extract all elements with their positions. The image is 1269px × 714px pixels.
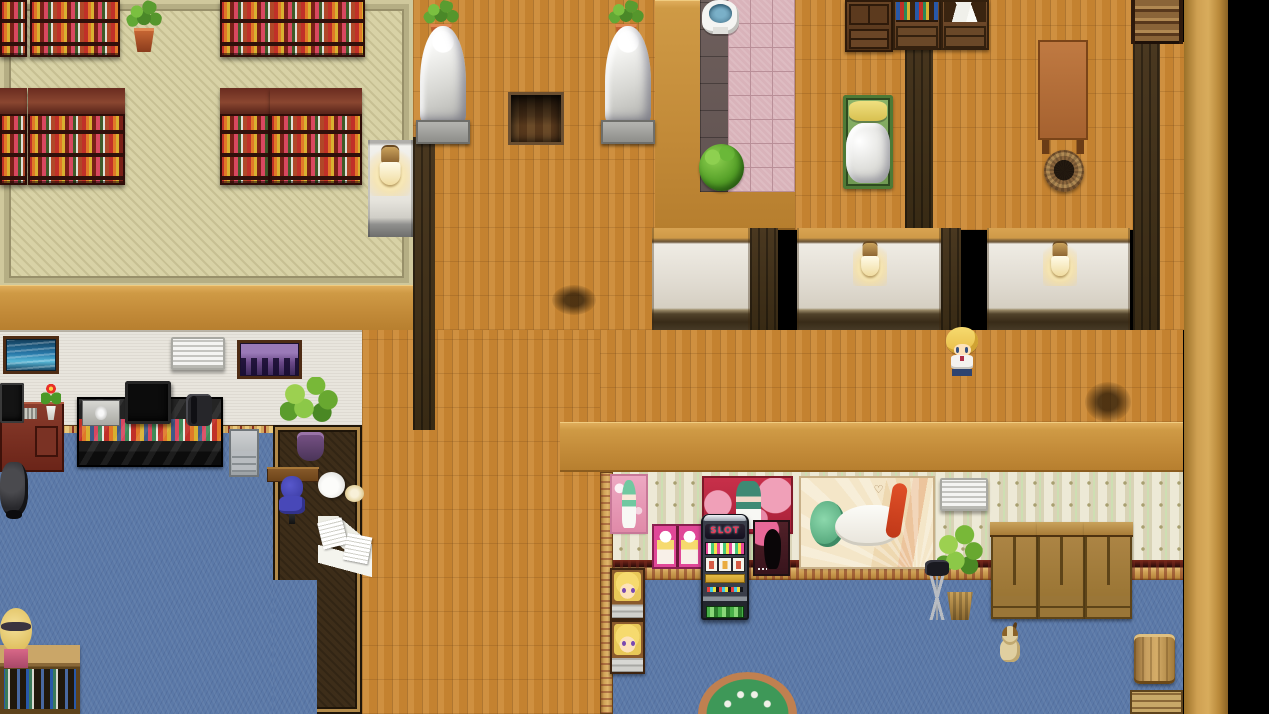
library-bookshelf-3 bbox=[220, 0, 365, 57]
tv-monitor bbox=[125, 381, 171, 424]
library-bookshelf-2 bbox=[30, 0, 120, 57]
camera-tripod-legs bbox=[911, 573, 964, 620]
office-carpet-notch bbox=[273, 580, 317, 714]
picture-ocean bbox=[6, 339, 56, 371]
floor-stain-1 bbox=[1085, 382, 1131, 422]
camera-tripod-head bbox=[925, 560, 949, 576]
bedroom-table bbox=[1038, 40, 1088, 154]
slot-machine-btns bbox=[707, 587, 743, 592]
poster-pinup-small bbox=[612, 476, 646, 532]
stairs-down[interactable] bbox=[1131, 0, 1183, 44]
player-character[interactable] bbox=[945, 327, 979, 377]
puppy[interactable] bbox=[996, 624, 1024, 664]
slot-machine-reels bbox=[705, 557, 745, 572]
poster-pinup-large-legs bbox=[885, 483, 908, 540]
library-bookshelf-5 bbox=[28, 88, 125, 185]
wall-shadow-hall bbox=[413, 137, 435, 430]
lounge-plant bbox=[280, 377, 340, 461]
slot-machine[interactable]: SLOT bbox=[701, 514, 749, 620]
bed[interactable] bbox=[843, 95, 893, 189]
library-south-wall bbox=[0, 285, 413, 332]
office-chair-black[interactable] bbox=[0, 462, 28, 516]
wardrobe-2 bbox=[1038, 522, 1085, 619]
library-bookshelf-1 bbox=[0, 0, 27, 57]
room-lamp-1 bbox=[853, 240, 887, 286]
hall-lamp bbox=[370, 144, 410, 196]
library-bookshelf-4 bbox=[0, 88, 27, 185]
library-bookshelf-7 bbox=[270, 88, 362, 185]
room-wall-1 bbox=[652, 228, 750, 330]
npc-receptionist-band bbox=[1, 622, 30, 631]
bath-bush bbox=[699, 144, 744, 191]
poster-pinup-large bbox=[801, 478, 933, 567]
bedroom-dresser-books bbox=[893, 0, 941, 50]
wall-shadow-room1 bbox=[750, 228, 778, 330]
npc-receptionist[interactable] bbox=[0, 606, 32, 668]
bedroom-dresser-papers bbox=[941, 0, 989, 50]
slot-machine-marquee: SLOT bbox=[705, 524, 745, 540]
desk-flower bbox=[40, 382, 62, 420]
office-monitor bbox=[0, 383, 24, 423]
wardrobe-3 bbox=[1085, 522, 1132, 619]
npc-receptionist-body bbox=[4, 649, 27, 668]
poster-pink-pair bbox=[654, 526, 701, 567]
camera-tripod[interactable] bbox=[907, 560, 967, 620]
room-lamp-2 bbox=[1043, 240, 1077, 286]
office-chair-blue[interactable] bbox=[276, 476, 308, 526]
puppy-head bbox=[1002, 626, 1019, 644]
bedroom-cabinet bbox=[845, 0, 893, 52]
player-character-skirt bbox=[952, 369, 972, 376]
crate bbox=[1130, 690, 1183, 714]
wall-shadow-east bbox=[1133, 42, 1160, 330]
office-ac-vent bbox=[171, 337, 225, 370]
bedroom-basket bbox=[1044, 150, 1084, 192]
slot-machine-basepanel bbox=[706, 606, 744, 618]
photo-machine-2[interactable] bbox=[610, 620, 645, 674]
printer bbox=[229, 429, 259, 477]
casino-wall-top bbox=[560, 422, 1183, 472]
hall-floor-south bbox=[362, 330, 600, 714]
game-viewport[interactable]: LoveSLOT bbox=[0, 0, 1269, 714]
wall-shadow-room2 bbox=[941, 228, 961, 330]
statue-1 bbox=[412, 26, 474, 144]
floor-stain-2 bbox=[552, 285, 596, 315]
slot-machine-btnrow bbox=[705, 574, 745, 582]
statue-2 bbox=[597, 26, 659, 144]
tea-set bbox=[315, 469, 365, 505]
library-plant bbox=[124, 0, 164, 52]
office-phone bbox=[186, 394, 212, 426]
photo-machine-1[interactable] bbox=[610, 568, 645, 620]
barrel bbox=[1134, 634, 1175, 684]
casino-ac-vent bbox=[940, 478, 988, 511]
office-chair-blue-seat bbox=[279, 496, 306, 514]
poster-silhouette bbox=[755, 522, 788, 574]
slot-machine-top bbox=[704, 515, 746, 521]
east-wall bbox=[1184, 0, 1228, 714]
player-character-body bbox=[951, 355, 973, 369]
picture-city bbox=[240, 343, 299, 376]
floor-hatch[interactable] bbox=[508, 92, 564, 145]
toilet[interactable] bbox=[702, 0, 739, 34]
wardrobe-1 bbox=[991, 522, 1038, 619]
hall-floor-east bbox=[1158, 42, 1184, 330]
poster-pinup-large-heart bbox=[874, 483, 884, 496]
library-bookshelf-6 bbox=[220, 88, 270, 185]
dvd-player bbox=[82, 400, 120, 426]
scattered-papers bbox=[318, 516, 372, 580]
slot-machine-paytable bbox=[705, 542, 745, 556]
